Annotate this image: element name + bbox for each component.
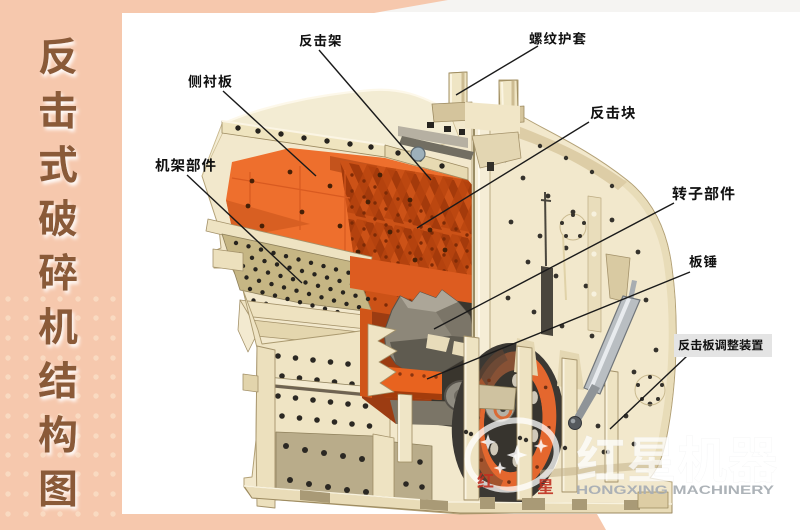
svg-text:HONGXING MACHINERY: HONGXING MACHINERY (576, 485, 774, 497)
